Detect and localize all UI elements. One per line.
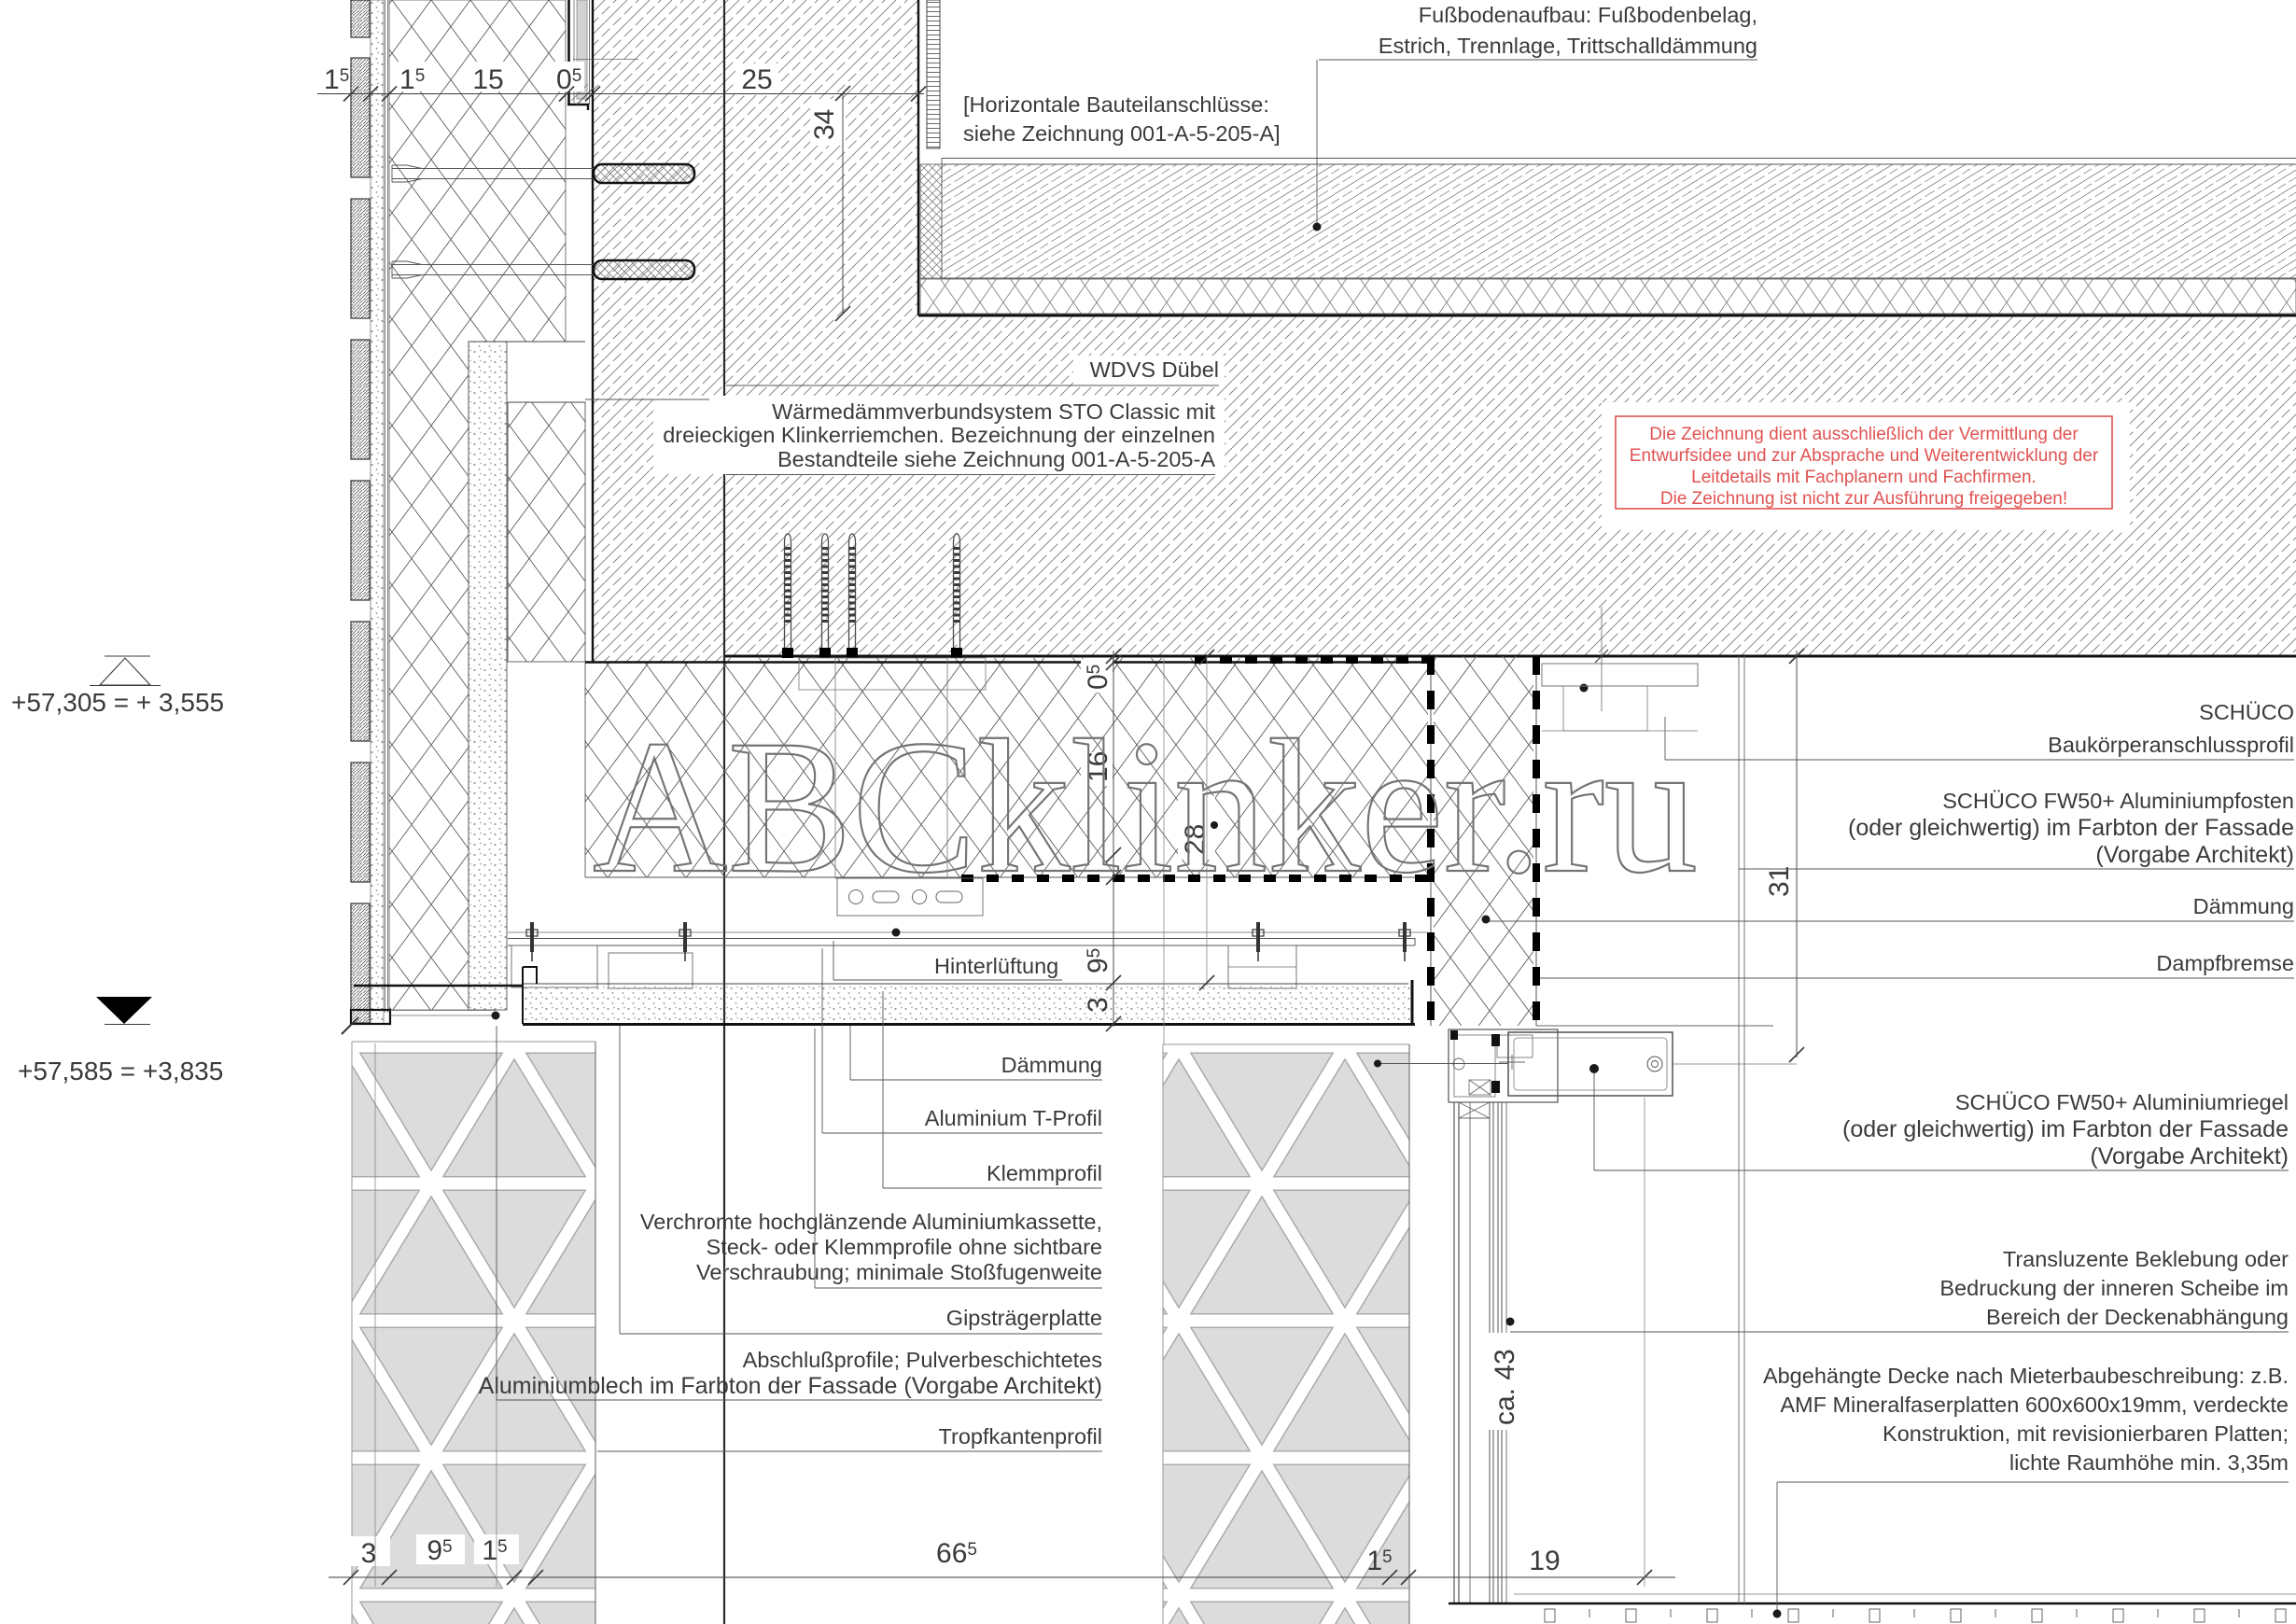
svg-text:19: 19 <box>1529 1546 1560 1576</box>
svg-text:Dämmung: Dämmung <box>2193 894 2294 918</box>
svg-text:(Vorgabe Architekt): (Vorgabe Architekt) <box>2095 842 2294 868</box>
svg-text:Abschlußprofile; Pulverbeschic: Abschlußprofile; Pulverbeschichtetes <box>743 1348 1102 1372</box>
svg-text:Estrich, Trennlage, Trittschal: Estrich, Trennlage, Trittschalldämmung <box>1379 34 1757 58</box>
svg-text:(Vorgabe Architekt): (Vorgabe Architekt) <box>2090 1143 2289 1169</box>
svg-text:Fußbodenaufbau: Fußbodenbelag,: Fußbodenaufbau: Fußbodenbelag, <box>1419 3 1757 27</box>
svg-text:Aluminiumblech im Farbton der: Aluminiumblech im Farbton der Fassade (V… <box>479 1373 1102 1399</box>
svg-text:Verchromte hochglänzende Alumi: Verchromte hochglänzende Aluminiumkasset… <box>640 1210 1102 1234</box>
svg-text:Konstruktion, mit revisionierb: Konstruktion, mit revisionierbaren Platt… <box>1883 1421 2289 1446</box>
svg-text:+57,585 = +3,835: +57,585 = +3,835 <box>18 1057 223 1085</box>
svg-text:25: 25 <box>741 64 772 95</box>
svg-text:Bereich der Deckenabhängung: Bereich der Deckenabhängung <box>1986 1305 2289 1329</box>
svg-text:Dampfbremse: Dampfbremse <box>2156 951 2294 975</box>
svg-text:lichte Raumhöhe min. 3,35m: lichte Raumhöhe min. 3,35m <box>2009 1450 2289 1475</box>
svg-text:31: 31 <box>1764 866 1795 897</box>
svg-text:SCHÜCO FW50+ Aluminiumpfosten: SCHÜCO FW50+ Aluminiumpfosten <box>1942 789 2294 813</box>
svg-text:SCHÜCO: SCHÜCO <box>2199 700 2294 724</box>
svg-text:Abgehängte Decke nach Mieterba: Abgehängte Decke nach Mieterbaubeschreib… <box>1763 1364 2289 1388</box>
svg-text:Bedruckung der inneren Scheibe: Bedruckung der inneren Scheibe im <box>1939 1276 2289 1300</box>
svg-text:Verschraubung; minimale Stoßfu: Verschraubung; minimale Stoßfugenweite <box>696 1260 1102 1284</box>
svg-text:siehe Zeichnung 001-A-5-205-A]: siehe Zeichnung 001-A-5-205-A] <box>963 121 1281 146</box>
svg-text:Tropfkantenprofil: Tropfkantenprofil <box>939 1424 1102 1449</box>
svg-text:Entwurfsidee und zur Absprache: Entwurfsidee und zur Absprache und Weite… <box>1630 446 2099 466</box>
svg-text:WDVS Dübel: WDVS Dübel <box>1090 357 1219 382</box>
svg-text:dreieckigen Klinkerriemchen. B: dreieckigen Klinkerriemchen. Bezeichnung… <box>663 423 1215 447</box>
svg-text:ca. 43: ca. 43 <box>1490 1349 1520 1425</box>
svg-text:SCHÜCO FW50+ Aluminiumriegel: SCHÜCO FW50+ Aluminiumriegel <box>1955 1090 2289 1114</box>
svg-text:AMF Mineralfaserplatten 600x60: AMF Mineralfaserplatten 600x600x19mm, ve… <box>1780 1393 2289 1417</box>
svg-text:Baukörperanschlussprofil: Baukörperanschlussprofil <box>2048 733 2294 757</box>
svg-text:(oder gleichwertig) im Farbton: (oder gleichwertig) im Farbton der Fassa… <box>1848 815 2294 841</box>
svg-text:Dämmung: Dämmung <box>1001 1053 1102 1077</box>
svg-text:ABCklinker.ru: ABCklinker.ru <box>593 701 1698 913</box>
svg-text:Transluzente Beklebung oder: Transluzente Beklebung oder <box>2003 1247 2289 1271</box>
svg-text:15: 15 <box>472 64 503 95</box>
svg-text:3: 3 <box>1083 997 1113 1013</box>
svg-text:(oder gleichwertig) im Farbton: (oder gleichwertig) im Farbton der Fassa… <box>1842 1116 2289 1142</box>
svg-text:Steck- oder Klemmprofile ohne: Steck- oder Klemmprofile ohne sichtbare <box>706 1235 1102 1259</box>
svg-text:Bestandteile siehe Zeichnung 0: Bestandteile siehe Zeichnung 001-A-5-205… <box>777 447 1215 471</box>
svg-text:Gipsträgerplatte: Gipsträgerplatte <box>946 1306 1102 1330</box>
svg-text:Leitdetails mit Fachplanern un: Leitdetails mit Fachplanern und Fachfirm… <box>1691 468 2037 487</box>
svg-text:[Horizontale Bauteilanschlüsse: [Horizontale Bauteilanschlüsse: <box>963 92 1269 117</box>
svg-text:+57,305 = + 3,555: +57,305 = + 3,555 <box>11 688 224 717</box>
svg-text:Die Zeichnung ist nicht zur Au: Die Zeichnung ist nicht zur Ausführung f… <box>1660 489 2067 509</box>
svg-text:Hinterlüftung: Hinterlüftung <box>934 954 1058 978</box>
svg-text:Wärmedämmverbundsystem STO Cla: Wärmedämmverbundsystem STO Classic mit <box>772 399 1215 424</box>
svg-text:3: 3 <box>361 1538 377 1569</box>
svg-text:Aluminium T-Profil: Aluminium T-Profil <box>925 1106 1102 1130</box>
svg-text:Die Zeichnung dient ausschließ: Die Zeichnung dient ausschließlich der V… <box>1649 425 2079 444</box>
svg-text:Klemmprofil: Klemmprofil <box>987 1161 1102 1185</box>
svg-text:34: 34 <box>809 109 840 140</box>
